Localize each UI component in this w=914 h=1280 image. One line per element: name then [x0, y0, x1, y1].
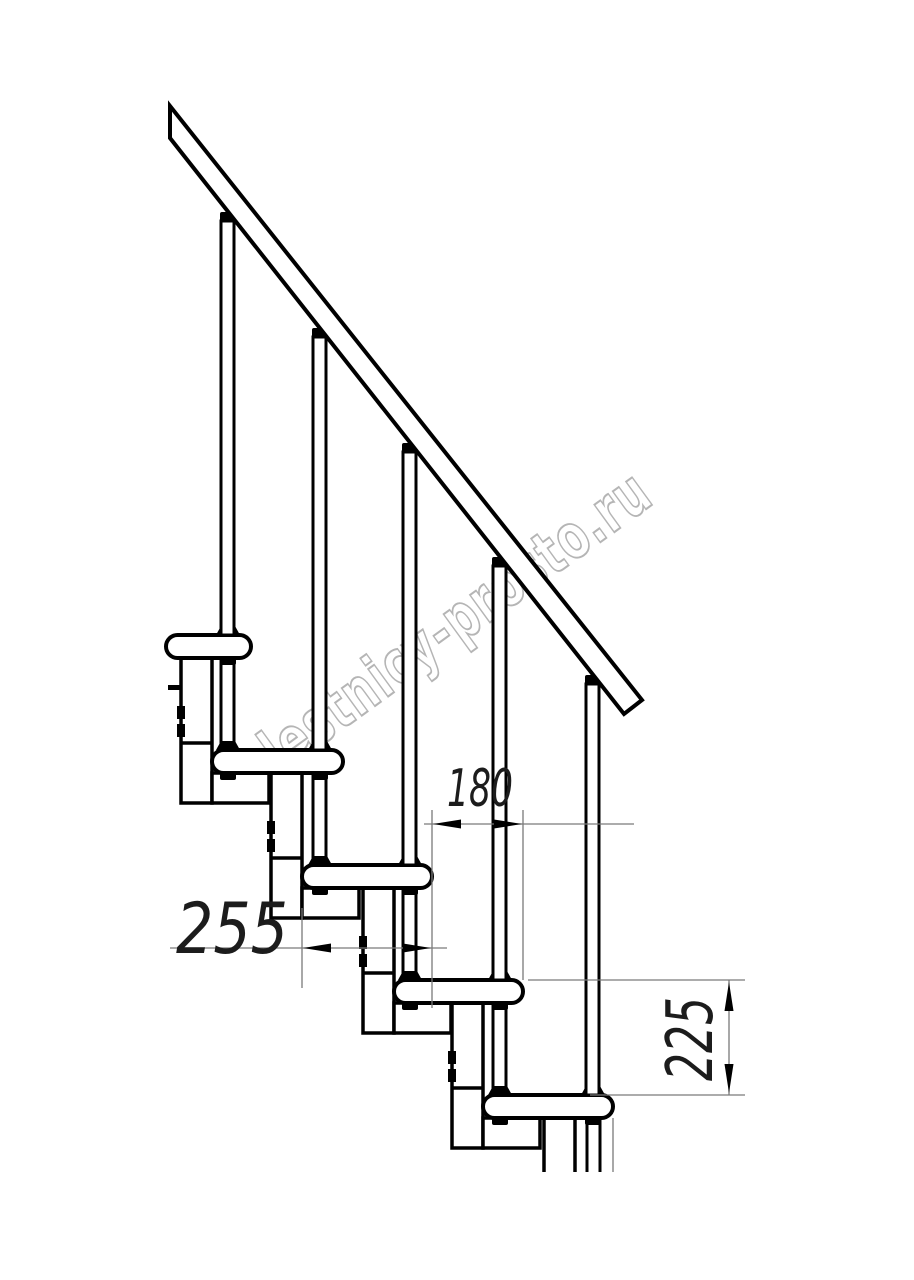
bolt-nub — [585, 1118, 601, 1125]
bolt-nub — [220, 658, 236, 665]
baluster — [221, 221, 234, 635]
tread — [166, 635, 251, 658]
bolt-nub — [402, 888, 418, 895]
arrowhead — [433, 820, 461, 829]
support-pillar — [221, 658, 234, 750]
tread — [302, 865, 432, 888]
bolt-nub — [220, 773, 236, 780]
support-pillar — [403, 888, 416, 980]
module-tab — [177, 706, 185, 719]
bolt-nub — [312, 888, 328, 895]
dim-label-going: 180 — [447, 759, 513, 819]
support-pillar — [493, 1003, 506, 1095]
drawing-svg: lestnicy-prosto.ru — [0, 0, 914, 1280]
dim-label-rise: 225 — [654, 997, 728, 1081]
module-tab — [267, 839, 275, 852]
baluster — [313, 337, 326, 750]
spine-module-cut — [544, 1118, 575, 1172]
bolt-nub — [492, 1003, 508, 1010]
module-tab — [177, 724, 185, 737]
module-stub — [168, 685, 181, 690]
arrowhead — [303, 944, 331, 953]
baluster — [586, 684, 599, 1095]
module-tab — [448, 1069, 456, 1082]
tread — [212, 750, 343, 773]
dim-label-tread-depth: 255 — [176, 888, 288, 970]
baluster — [403, 452, 416, 865]
bolt-nub — [312, 773, 328, 780]
watermark-text: lestnicy-prosto.ru — [246, 455, 665, 787]
module-tab — [267, 821, 275, 834]
bolt-nub — [492, 1118, 508, 1125]
module-tab — [359, 954, 367, 967]
bolt-nub — [402, 1003, 418, 1010]
arrowhead — [494, 820, 522, 829]
module-tab — [359, 936, 367, 949]
module-tab — [448, 1051, 456, 1064]
support-pillar — [313, 773, 326, 865]
support-pillar-cut — [587, 1118, 600, 1172]
staircase-technical-drawing: lestnicy-prosto.ru — [0, 0, 914, 1280]
tread — [394, 980, 523, 1003]
watermark: lestnicy-prosto.ru — [246, 455, 665, 787]
tread — [483, 1095, 613, 1118]
